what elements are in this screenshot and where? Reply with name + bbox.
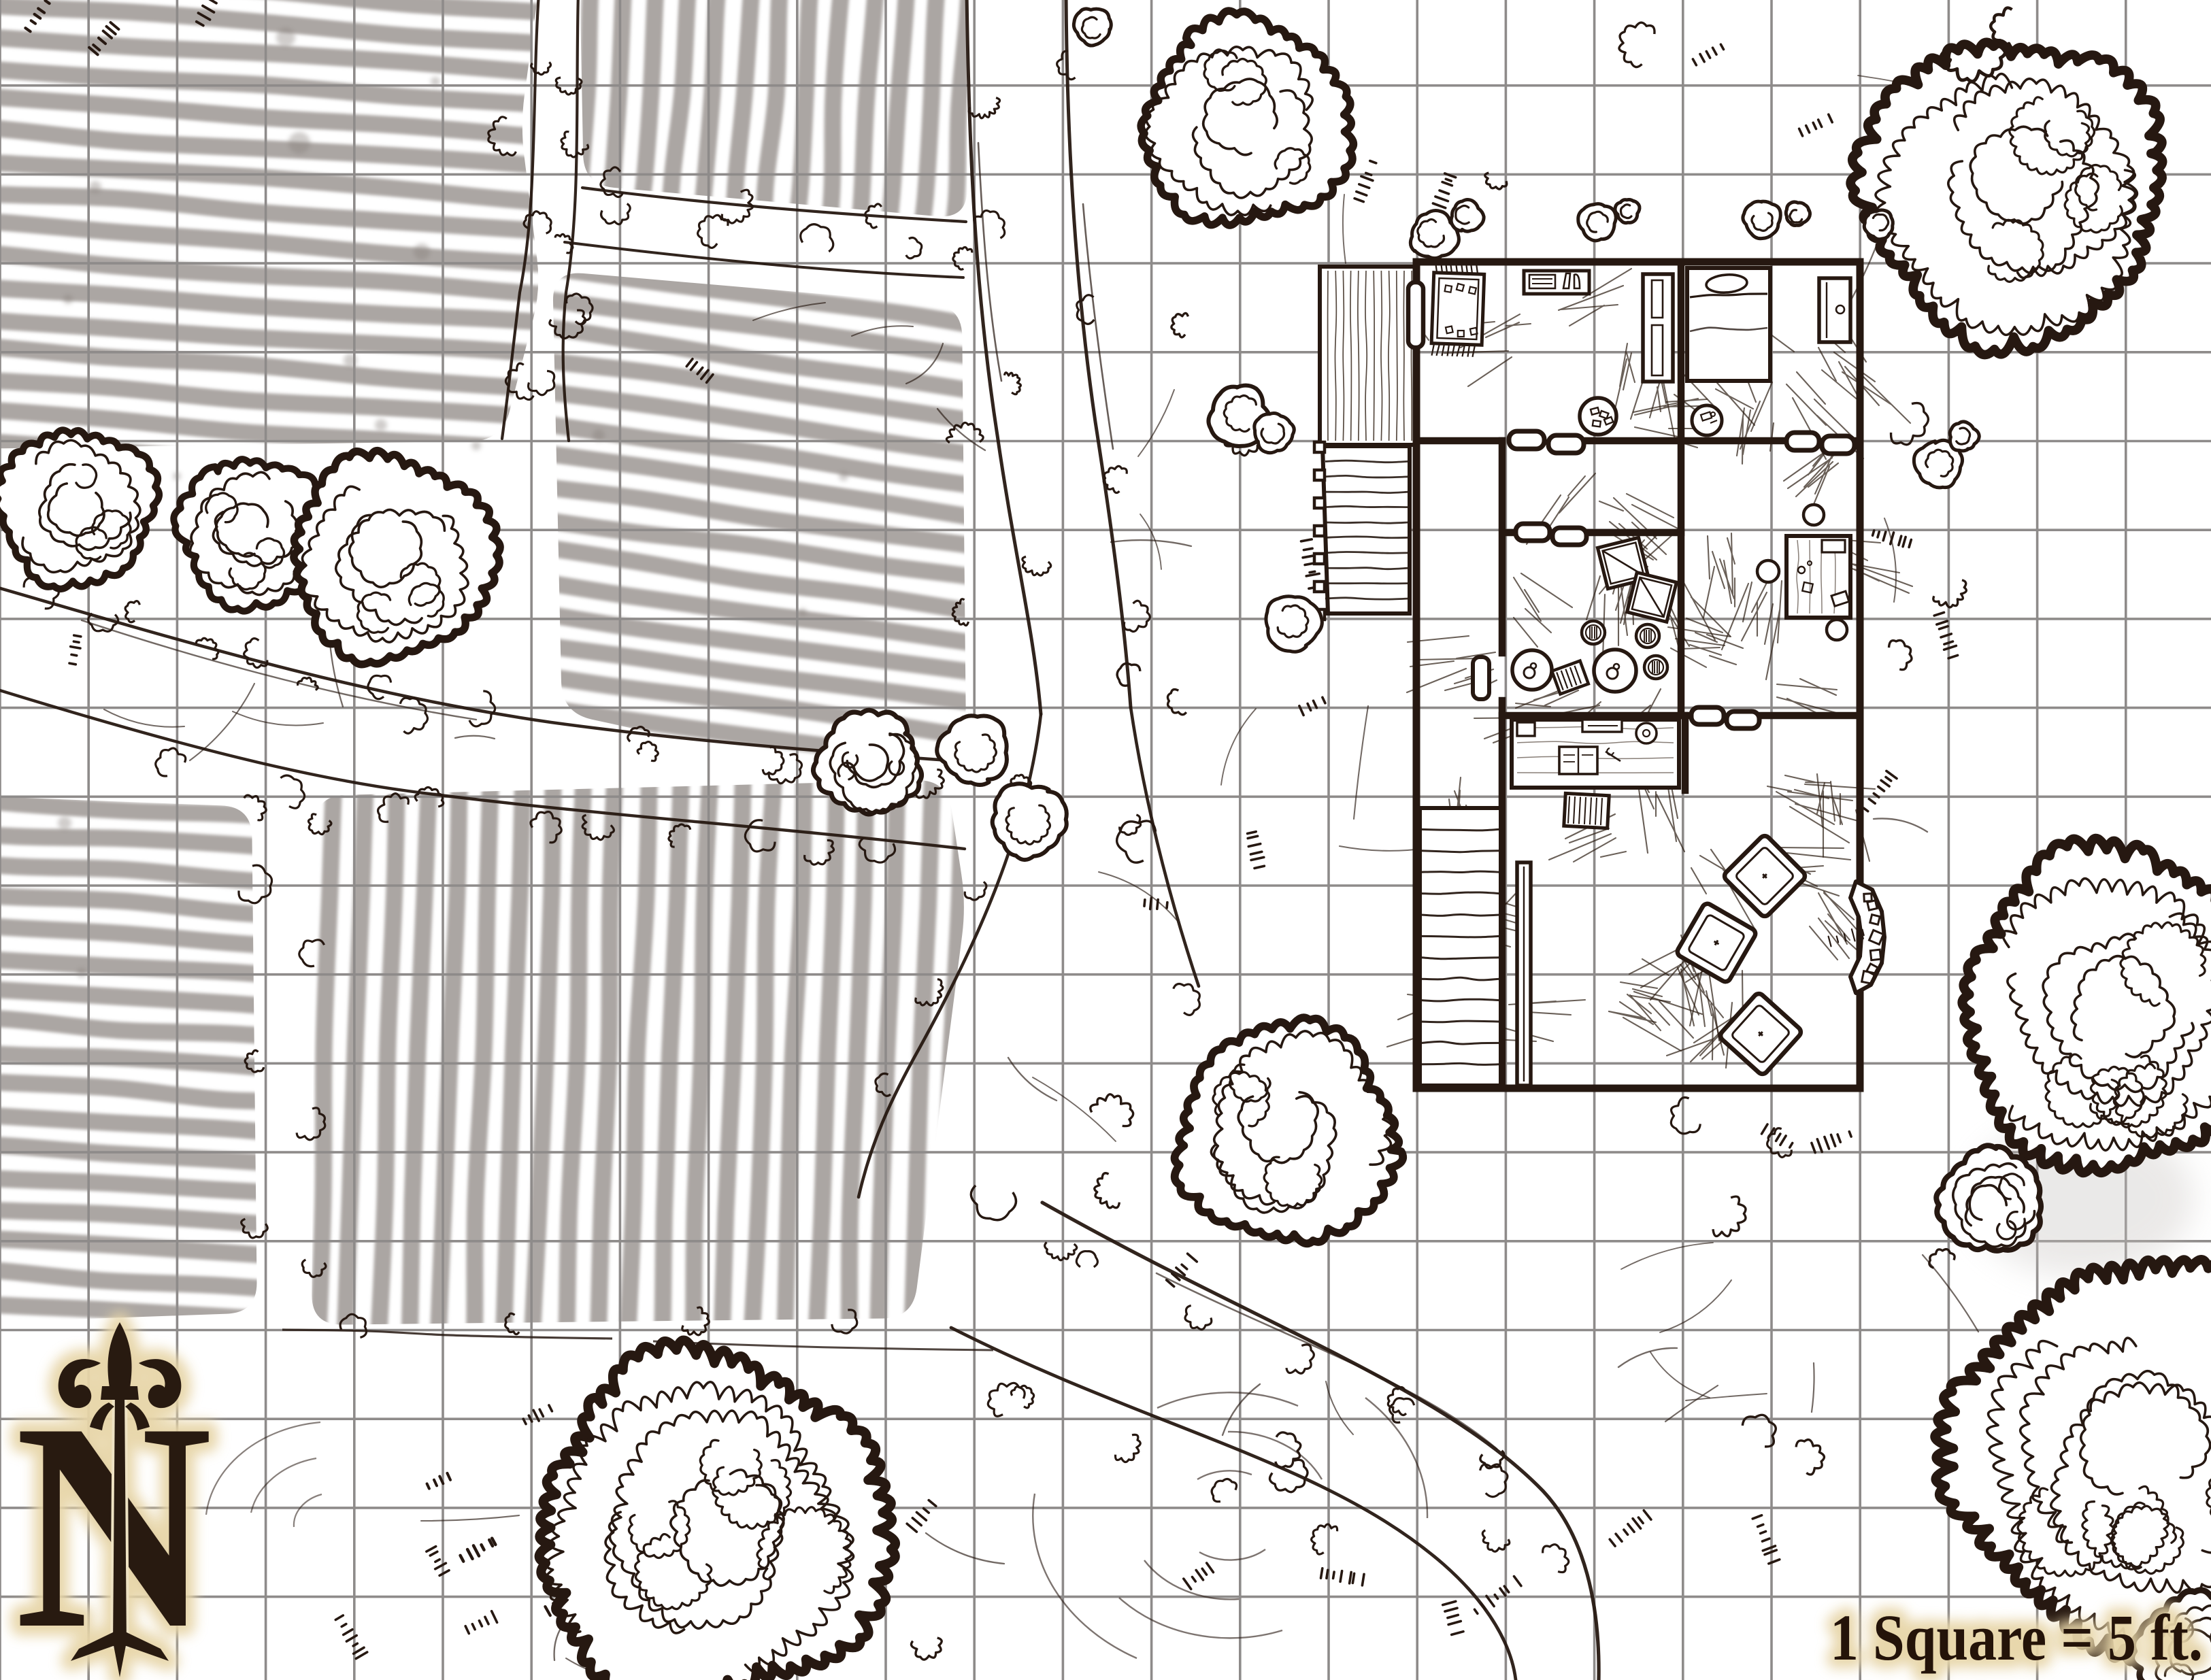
- svg-text:1 Square = 5 ft.: 1 Square = 5 ft.: [1830, 1601, 2203, 1674]
